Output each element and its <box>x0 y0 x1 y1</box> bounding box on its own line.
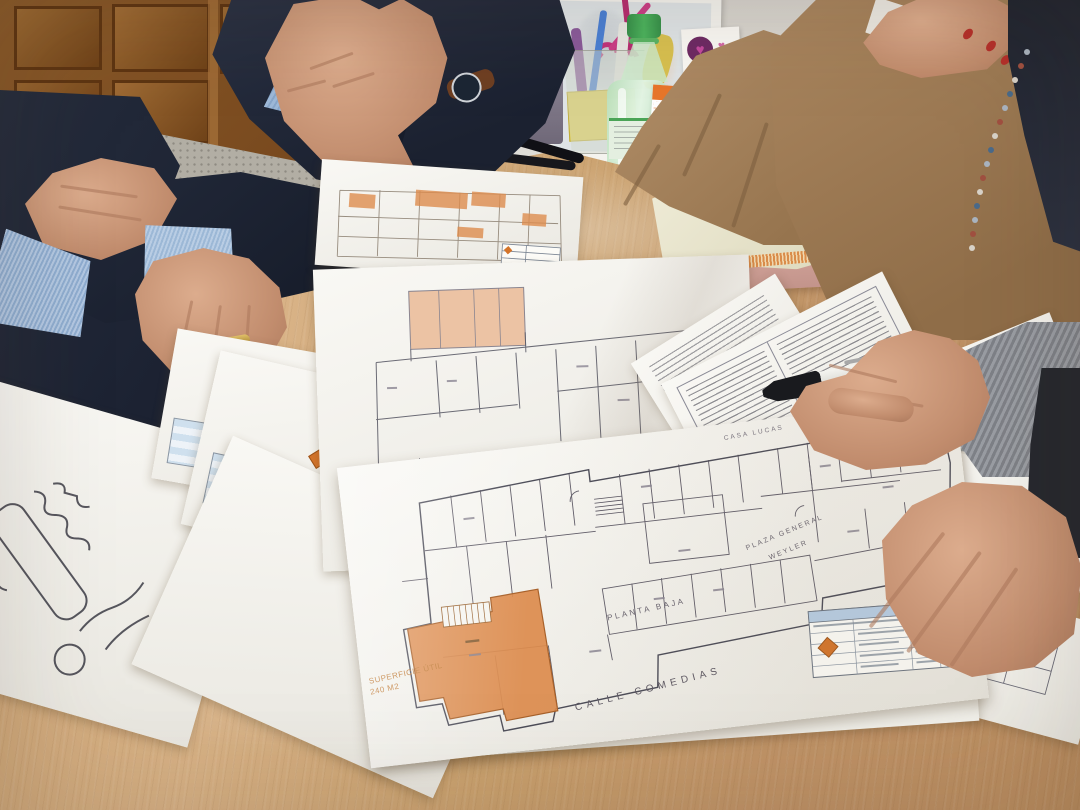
door-stile <box>208 0 218 160</box>
bead-necklace <box>925 40 1055 265</box>
door-panel <box>14 6 102 70</box>
bottle-cap <box>627 14 661 38</box>
door-panel <box>112 4 210 72</box>
meeting-photo: ♥ ♥ ♥ ♥ ♥ ♥ <box>0 0 1080 810</box>
bottle-neck <box>618 42 670 82</box>
